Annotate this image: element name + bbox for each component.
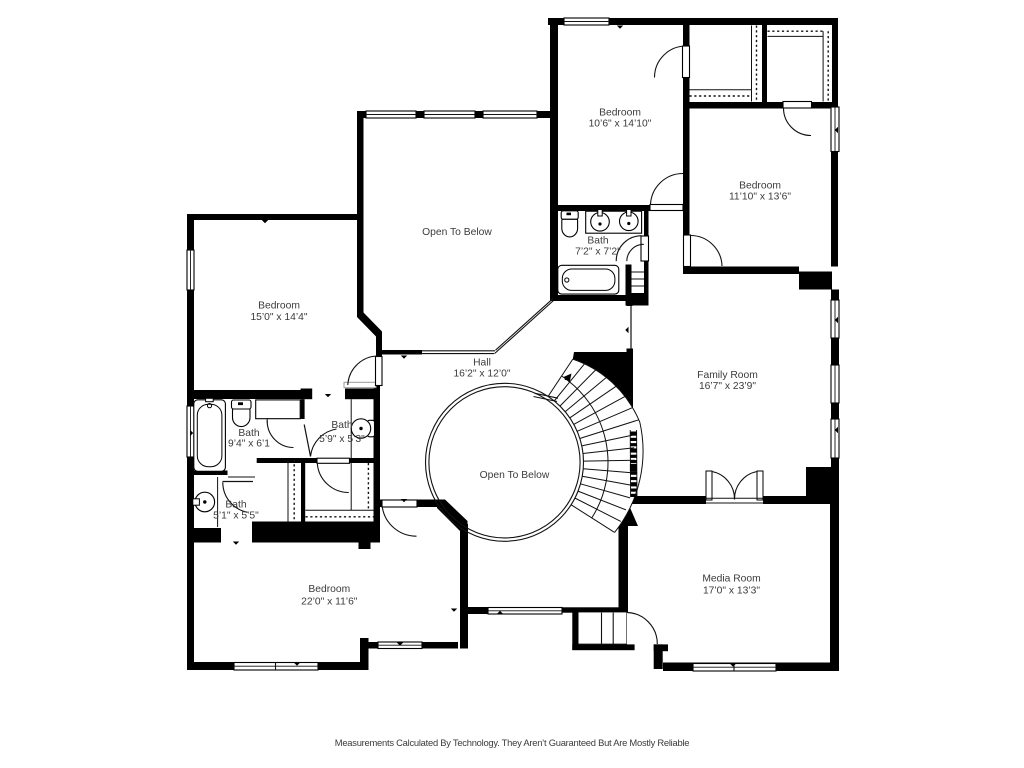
svg-text:5’1" x 5’5": 5’1" x 5’5" bbox=[213, 511, 259, 522]
svg-text:Family Room: Family Room bbox=[697, 370, 758, 381]
svg-text:Open To Below: Open To Below bbox=[422, 227, 492, 238]
svg-text:16’2" x 12’0": 16’2" x 12’0" bbox=[453, 369, 510, 380]
svg-text:Bedroom: Bedroom bbox=[739, 180, 781, 191]
svg-text:10’6" x 14’10": 10’6" x 14’10" bbox=[589, 118, 652, 129]
svg-text:16’7" x 23’9": 16’7" x 23’9" bbox=[699, 381, 756, 392]
svg-text:7’2" x 7’2": 7’2" x 7’2" bbox=[575, 247, 621, 258]
svg-text:Hall: Hall bbox=[473, 358, 491, 369]
svg-text:17’0" x 13’3": 17’0" x 13’3" bbox=[703, 586, 760, 597]
svg-text:Media Room: Media Room bbox=[702, 573, 760, 584]
svg-text:15’0" x 14’4": 15’0" x 14’4" bbox=[250, 312, 307, 323]
svg-text:9’4" x 6’1: 9’4" x 6’1 bbox=[228, 439, 270, 450]
svg-text:22’0" x 11’6": 22’0" x 11’6" bbox=[301, 596, 358, 607]
svg-text:Measurements Calculated By Tec: Measurements Calculated By Technology. T… bbox=[335, 737, 690, 748]
svg-text:Bath: Bath bbox=[238, 428, 259, 439]
svg-text:Bedroom: Bedroom bbox=[258, 301, 300, 312]
svg-text:Bath: Bath bbox=[331, 420, 352, 431]
svg-text:5’9" x 5’3": 5’9" x 5’3" bbox=[319, 434, 365, 445]
svg-text:11’10" x 13’6": 11’10" x 13’6" bbox=[729, 192, 791, 203]
svg-text:Bath: Bath bbox=[225, 500, 246, 511]
svg-text:Bedroom: Bedroom bbox=[308, 584, 350, 595]
svg-text:Bath: Bath bbox=[587, 235, 608, 246]
svg-text:Bedroom: Bedroom bbox=[599, 108, 641, 119]
svg-text:Open To Below: Open To Below bbox=[480, 470, 550, 481]
